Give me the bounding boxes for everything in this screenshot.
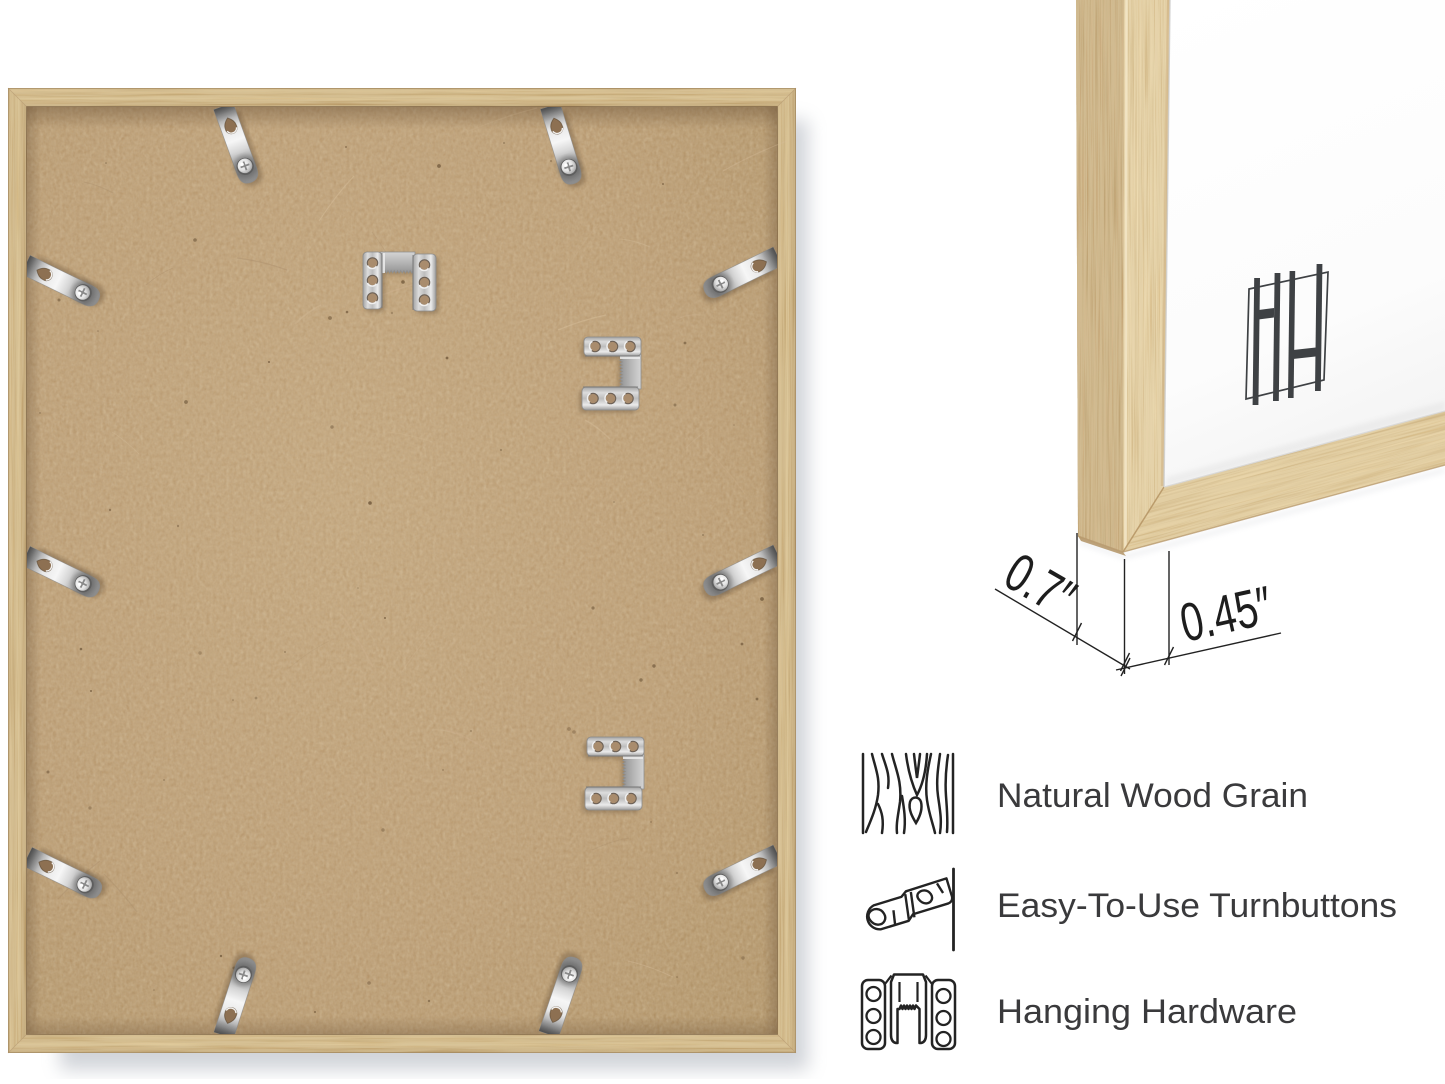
svg-text:Natural Wood Grain: Natural Wood Grain (997, 777, 1308, 815)
svg-text:Hanging Hardware: Hanging Hardware (997, 993, 1297, 1031)
svg-text:Easy-To-Use Turnbuttons: Easy-To-Use Turnbuttons (997, 887, 1397, 925)
